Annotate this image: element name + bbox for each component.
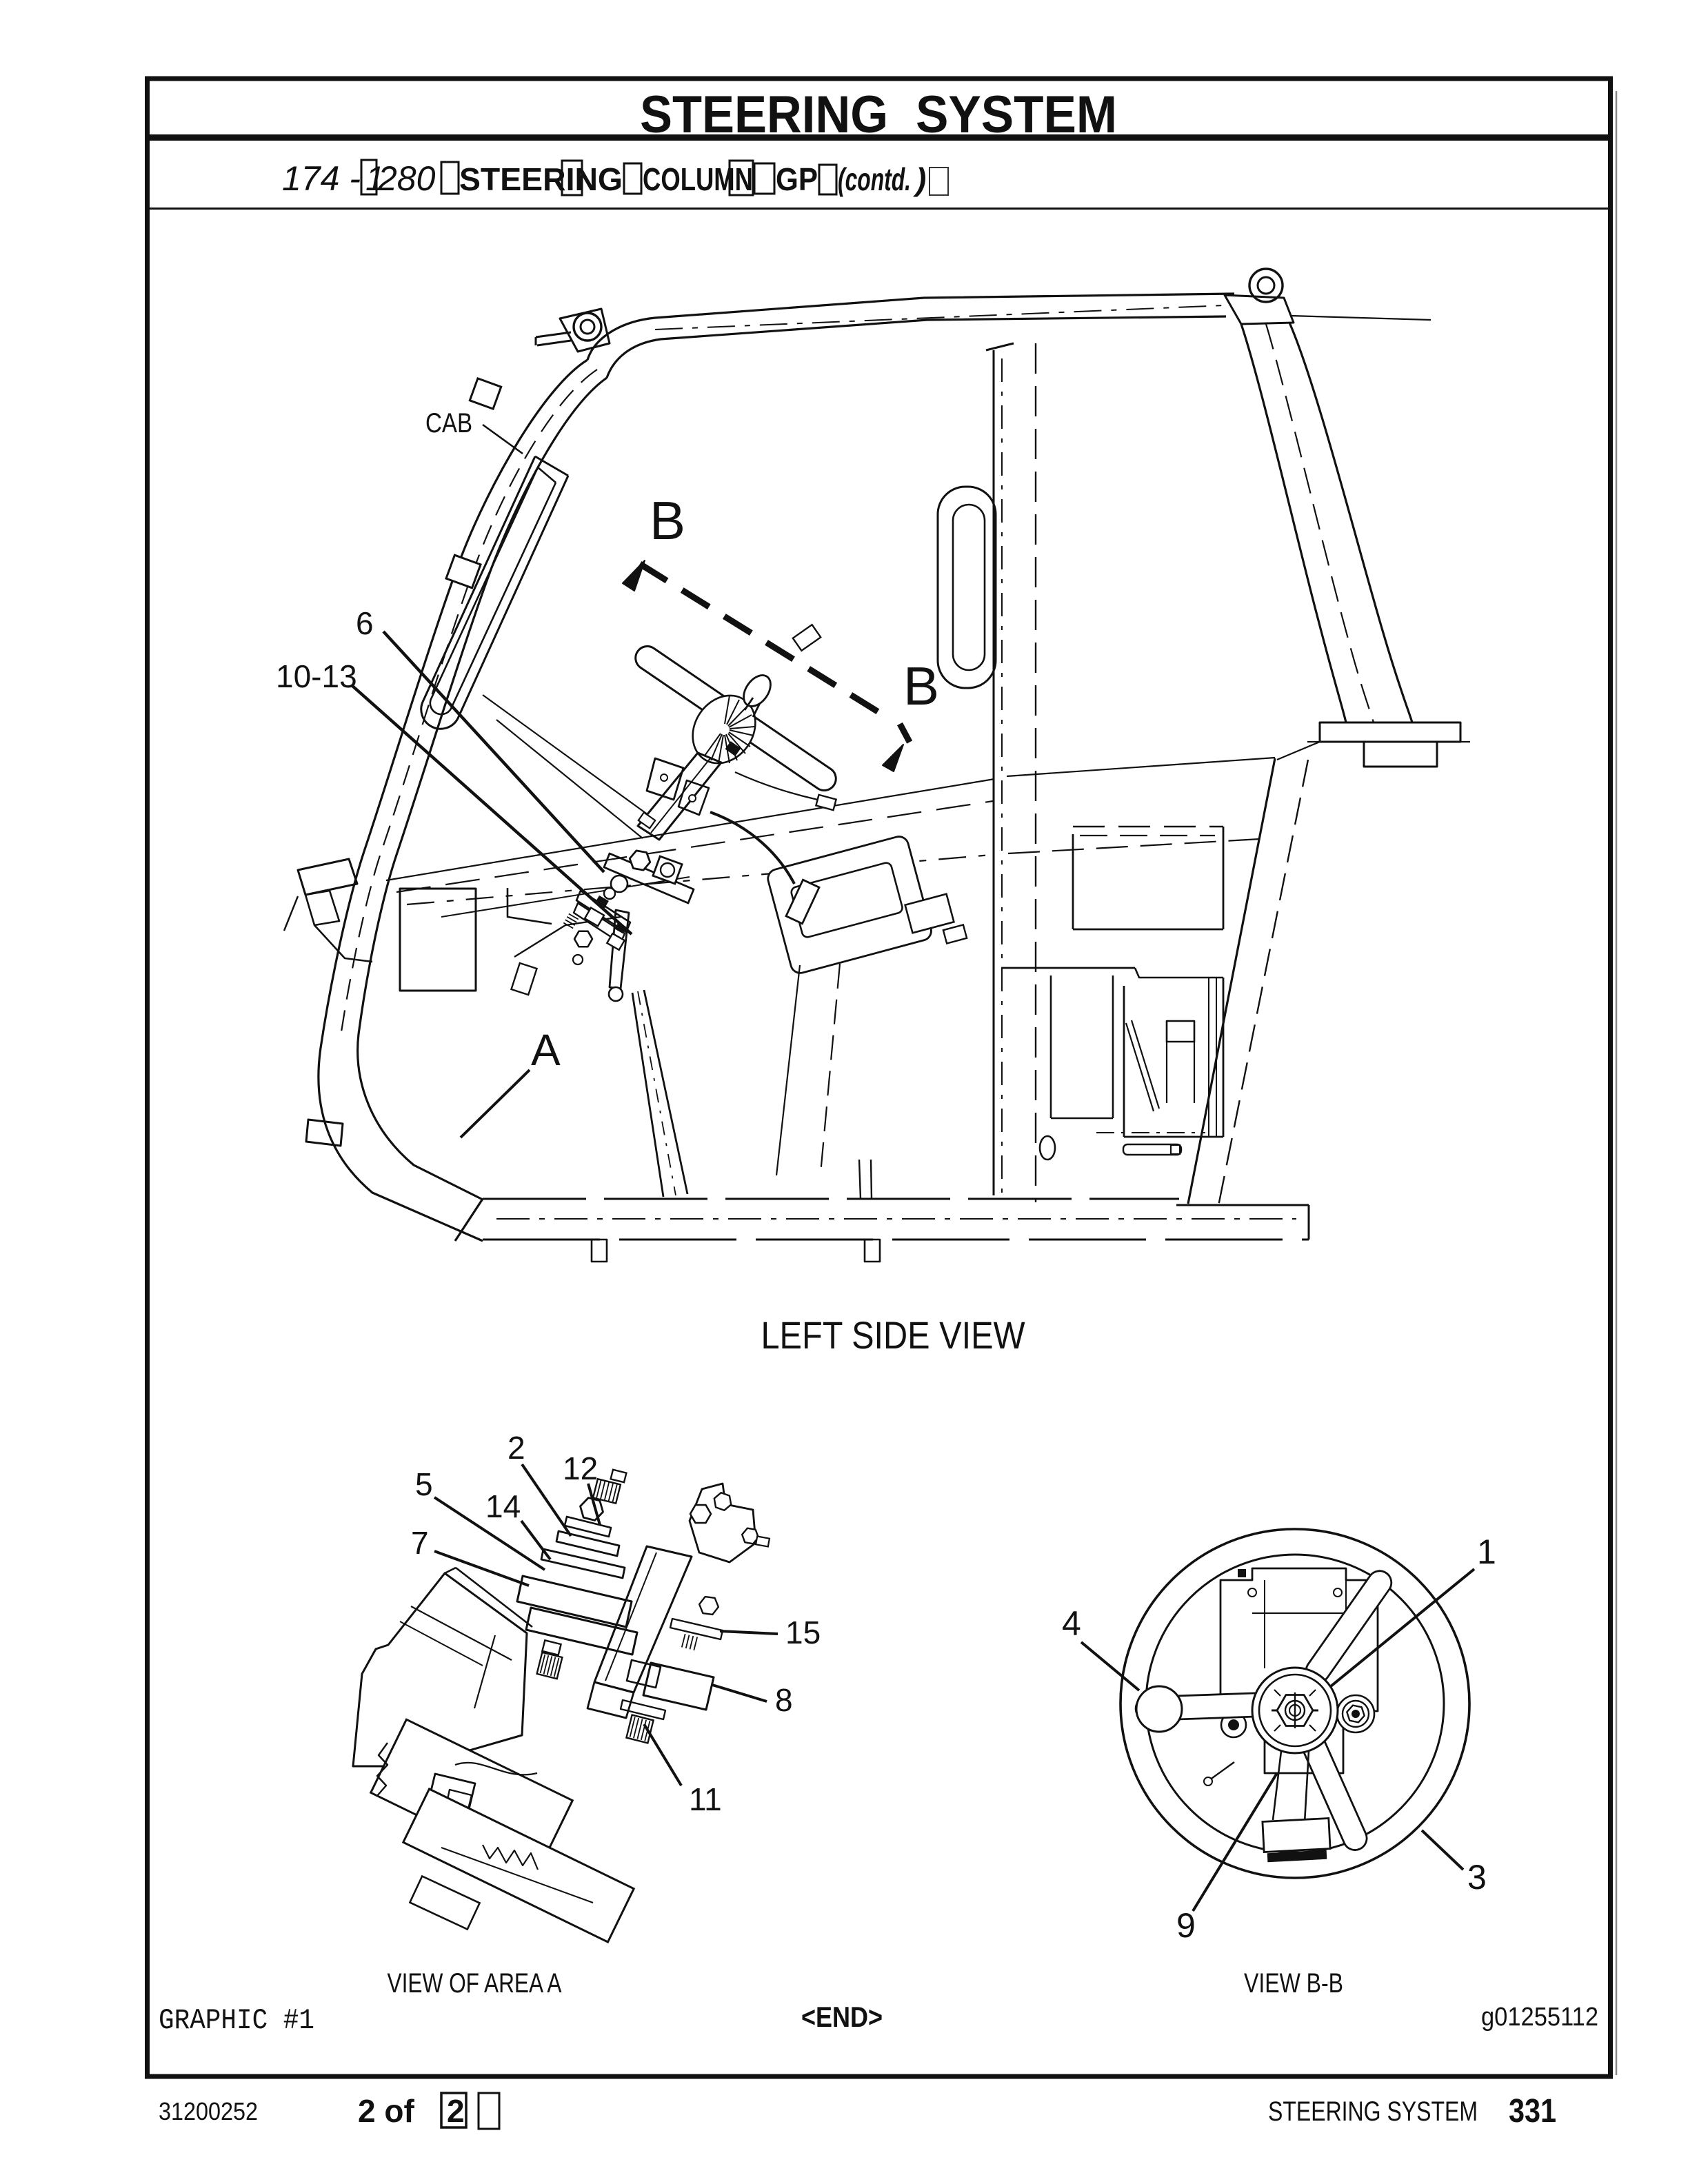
svg-text:<END>: <END> (801, 2001, 883, 2033)
svg-text:VIEW B-B: VIEW B-B (1244, 1968, 1343, 1999)
svg-text:2: 2 (447, 2093, 465, 2129)
svg-text:8: 8 (775, 1682, 793, 1718)
svg-text:B: B (650, 490, 685, 551)
svg-text:(contd.: (contd. (838, 161, 911, 197)
svg-text:14: 14 (485, 1488, 521, 1524)
svg-text:2: 2 (508, 1430, 525, 1466)
svg-text:10-13: 10-13 (276, 658, 357, 694)
svg-text:VIEW OF AREA A: VIEW OF AREA A (388, 1968, 562, 1999)
svg-text:331: 331 (1509, 2093, 1556, 2130)
svg-text:STEERING SYSTEM: STEERING SYSTEM (1268, 2096, 1478, 2127)
svg-text:11: 11 (689, 1781, 722, 1817)
svg-text:B: B (903, 656, 939, 716)
svg-text:7: 7 (411, 1525, 429, 1561)
svg-text:GRAPHIC #1: GRAPHIC #1 (159, 2004, 314, 2037)
svg-text:9: 9 (1176, 1906, 1196, 1945)
svg-text:6: 6 (356, 605, 374, 641)
svg-text:15: 15 (785, 1615, 821, 1650)
svg-text:CAB: CAB (425, 408, 472, 438)
svg-text:31200252: 31200252 (159, 2097, 258, 2125)
svg-text:COLUMN: COLUMN (643, 161, 753, 197)
svg-text:280: 280 (377, 159, 436, 198)
svg-text:4: 4 (1062, 1604, 1081, 1643)
svg-text:1: 1 (1477, 1533, 1496, 1571)
svg-text:STEERING: STEERING (640, 85, 888, 144)
svg-text:174 -: 174 - (282, 159, 361, 198)
svg-text:2 of: 2 of (358, 2093, 414, 2129)
svg-text:3: 3 (1467, 1858, 1487, 1897)
svg-text:g01255112: g01255112 (1481, 2003, 1598, 2032)
svg-text:STEERING: STEERING (459, 161, 623, 197)
svg-text:5: 5 (415, 1466, 433, 1502)
svg-text:LEFT SIDE VIEW: LEFT SIDE VIEW (761, 1313, 1025, 1357)
svg-text:SYSTEM: SYSTEM (916, 85, 1117, 144)
svg-text:12: 12 (563, 1450, 598, 1486)
svg-text:GP: GP (776, 161, 818, 197)
svg-text:A: A (531, 1025, 561, 1075)
